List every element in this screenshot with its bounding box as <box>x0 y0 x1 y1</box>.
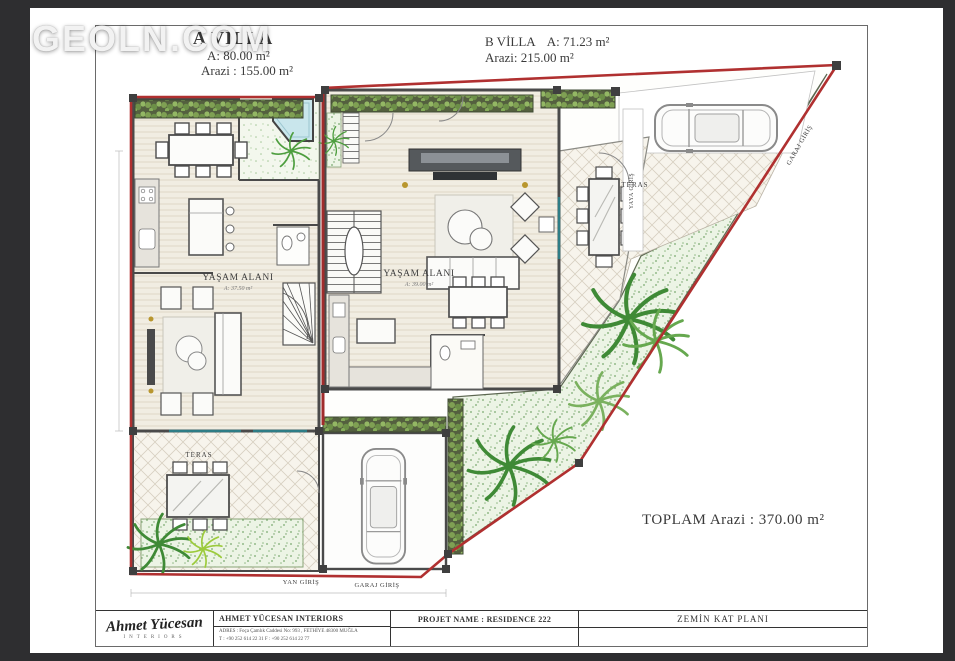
address-line-1: ADRES : Foça Çamlık Caddesi No: 993 , FE… <box>219 628 390 636</box>
teras-label-b: TERAS <box>621 181 648 189</box>
floor-plan-canvas: YAŞAM ALANI A: 37.50 m² YAŞAM ALANI A: 3… <box>96 26 869 648</box>
stairs-a <box>283 283 315 345</box>
geoln-watermark: GEOLN.COM <box>32 18 272 60</box>
company-name: AHMET YÜCESAN INTERIORS <box>214 611 390 627</box>
villa-b-title: B VİLLA <box>485 34 536 49</box>
sheet-title: ZEMİN KAT PLANI <box>579 611 867 628</box>
wc-a <box>277 227 309 265</box>
living-label-a: YAŞAM ALANI <box>202 273 273 283</box>
logo-signature: Ahmet Yücesan <box>106 615 203 635</box>
car-garage <box>360 449 407 564</box>
dining-set-b <box>449 277 507 328</box>
teras-label-a: TERAS <box>185 451 212 459</box>
company-address: ADRES : Foça Çamlık Caddesi No: 993 , FE… <box>214 627 390 646</box>
project-name: PROJET NAME : RESIDENCE 222 <box>391 611 578 628</box>
logo-subtitle: INTERIORS <box>123 635 185 640</box>
terrace-a-dining <box>167 462 229 530</box>
screenshot-root: GEOLN.COM A VİLLA A: 80.00 m² Arazi : 15… <box>0 0 955 661</box>
living-area-b: A: 39.00 m² <box>404 282 433 288</box>
title-block: Ahmet Yücesan INTERIORS AHMET YÜCESAN IN… <box>96 610 867 646</box>
wc-b <box>431 335 483 389</box>
drawing-sheet: GEOLN.COM A VİLLA A: 80.00 m² Arazi : 15… <box>30 8 943 653</box>
title-block-sheet-cell: ZEMİN KAT PLANI <box>579 611 867 646</box>
drawing-frame: YAŞAM ALANI A: 37.50 m² YAŞAM ALANI A: 3… <box>95 25 868 647</box>
title-block-project-cell: PROJET NAME : RESIDENCE 222 <box>391 611 579 646</box>
car-parking <box>655 103 777 153</box>
living-area-a: A: 37.50 m² <box>223 286 252 292</box>
project-empty-row <box>391 628 578 646</box>
total-land-label: TOPLAM Arazi : 370.00 m² <box>642 512 824 529</box>
title-block-company-cell: AHMET YÜCESAN INTERIORS ADRES : Foça Çam… <box>214 611 391 646</box>
villa-a-land: Arazi : 155.00 m² <box>201 64 293 79</box>
sheet-empty-row <box>579 628 867 646</box>
tv-a <box>147 329 155 385</box>
address-line-2: T : +90 252 614 22 31 F : +90 252 614 22… <box>219 636 390 644</box>
yan-giris-label: YAN GİRİŞ <box>283 579 319 586</box>
villa-b-area: A: 71.23 m² <box>547 34 610 49</box>
living-label-b: YAŞAM ALANI <box>383 269 454 279</box>
yaya-giris-label: YAYA GİRİŞ <box>628 173 635 209</box>
garaj-giris-label-a: GARAJ GİRİŞ <box>354 582 399 589</box>
villa-b-header: B VİLLA A: 71.23 m² Arazi: 215.00 m² <box>485 30 609 66</box>
villa-b-land: Arazi: 215.00 m² <box>485 51 609 66</box>
title-block-logo-cell: Ahmet Yücesan INTERIORS <box>96 611 214 646</box>
stairs-b <box>327 211 381 293</box>
